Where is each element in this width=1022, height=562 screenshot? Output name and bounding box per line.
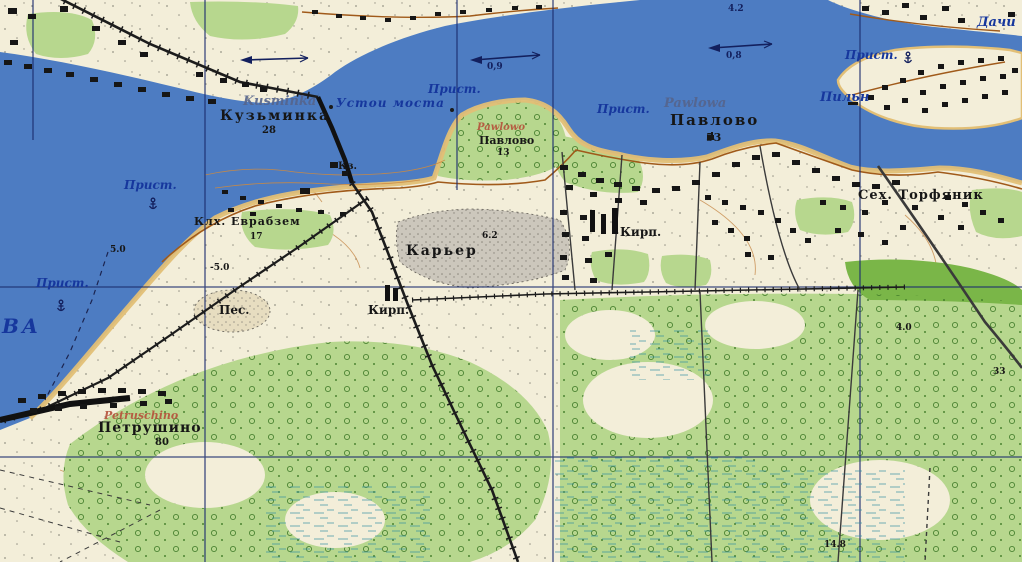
topographic-map: [0, 0, 1022, 562]
map-canvas[interactable]: Kusminka Кузьминка 28 Устои моста Прист.…: [0, 0, 1022, 562]
